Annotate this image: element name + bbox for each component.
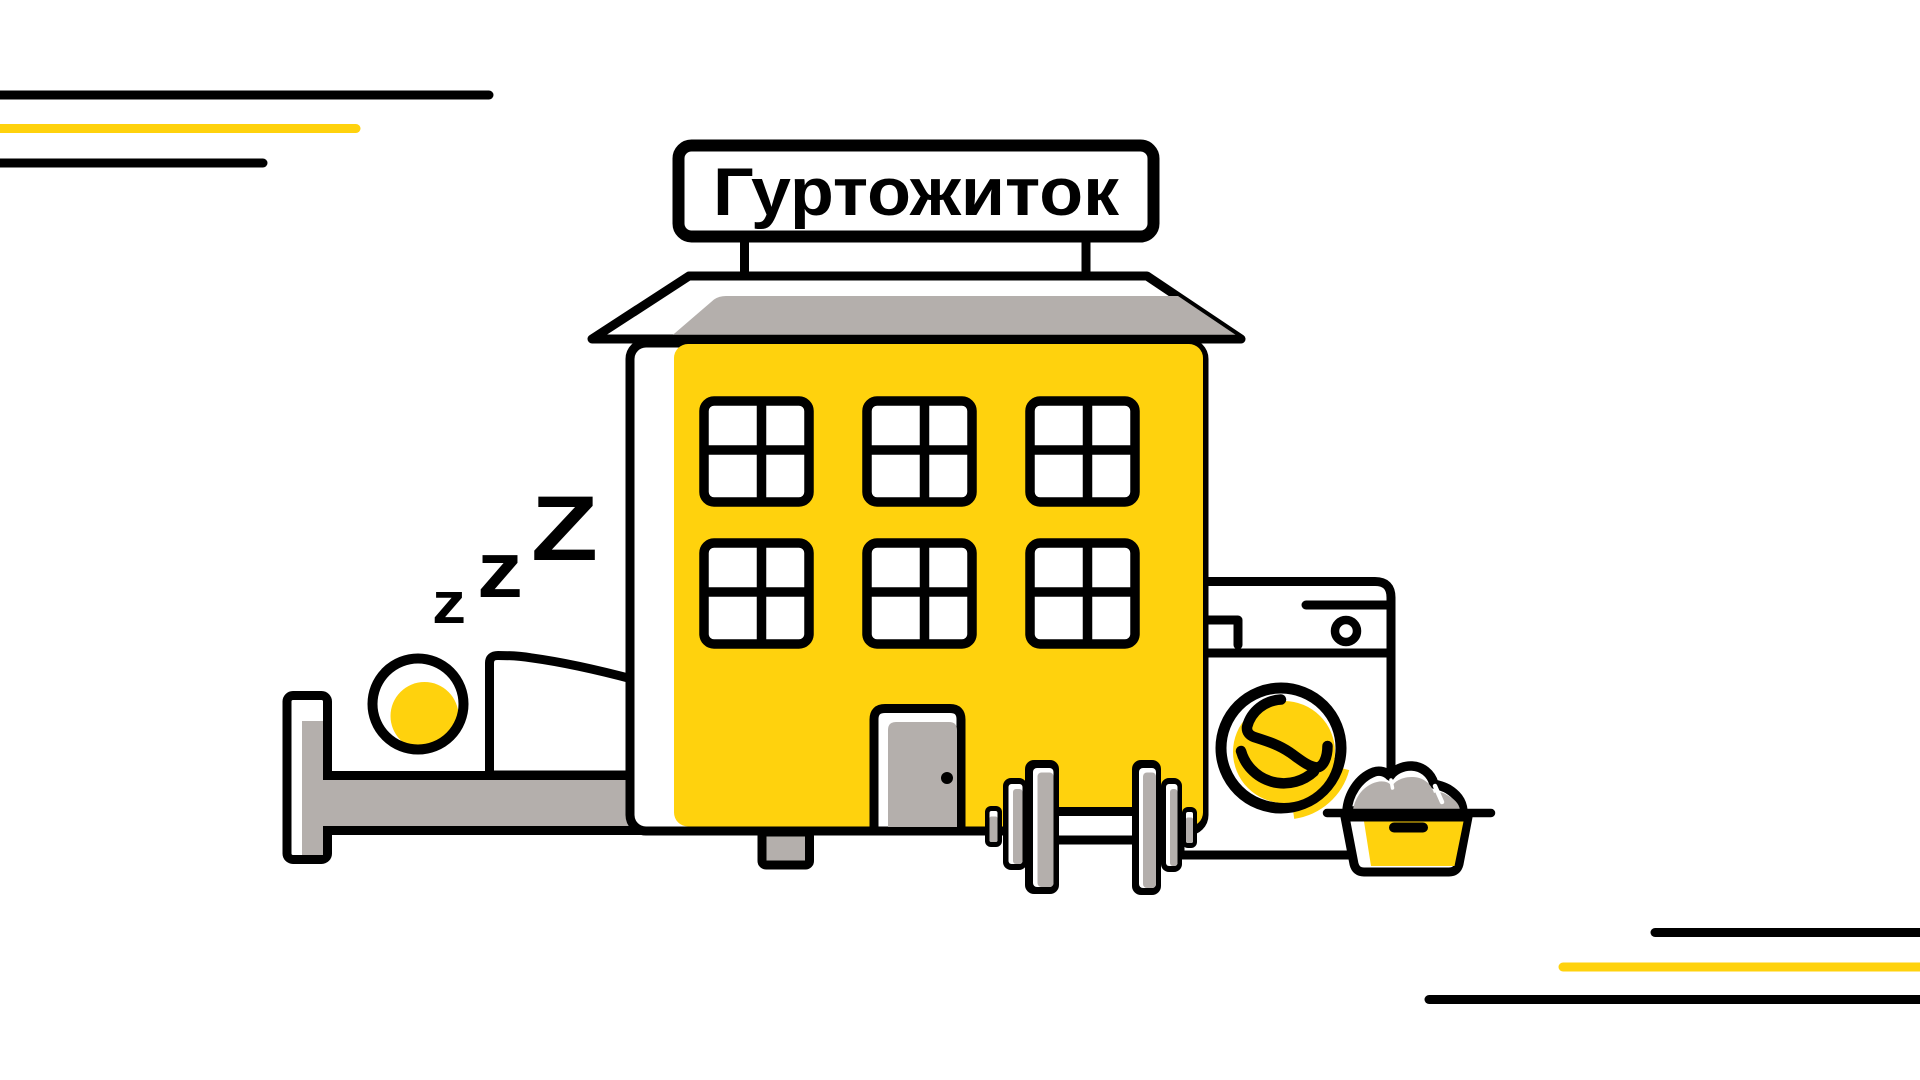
svg-text:Z: Z	[531, 478, 598, 580]
svg-text:z: z	[477, 525, 523, 614]
svg-text:Гуртожиток: Гуртожиток	[713, 154, 1120, 230]
svg-text:z: z	[432, 571, 466, 636]
